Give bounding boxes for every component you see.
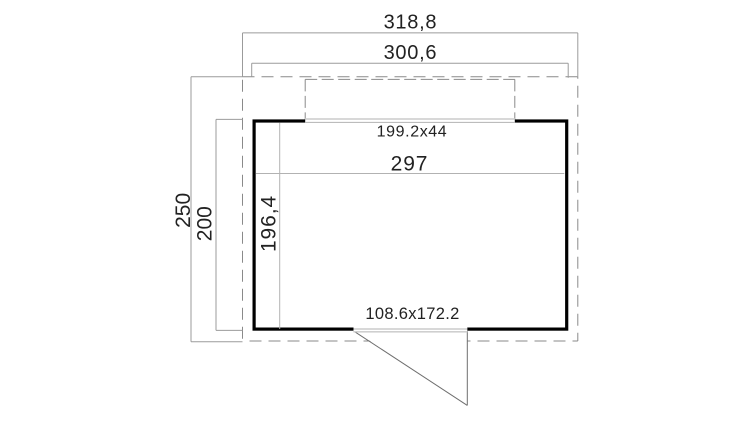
- svg-text:196,4: 196,4: [258, 195, 281, 252]
- svg-text:297: 297: [391, 152, 429, 175]
- svg-text:318,8: 318,8: [384, 11, 438, 33]
- svg-text:300,6: 300,6: [384, 42, 438, 64]
- svg-text:108.6x172.2: 108.6x172.2: [365, 305, 459, 323]
- svg-text:200: 200: [193, 206, 216, 241]
- svg-text:250: 250: [172, 193, 195, 228]
- svg-text:199.2x44: 199.2x44: [377, 124, 448, 141]
